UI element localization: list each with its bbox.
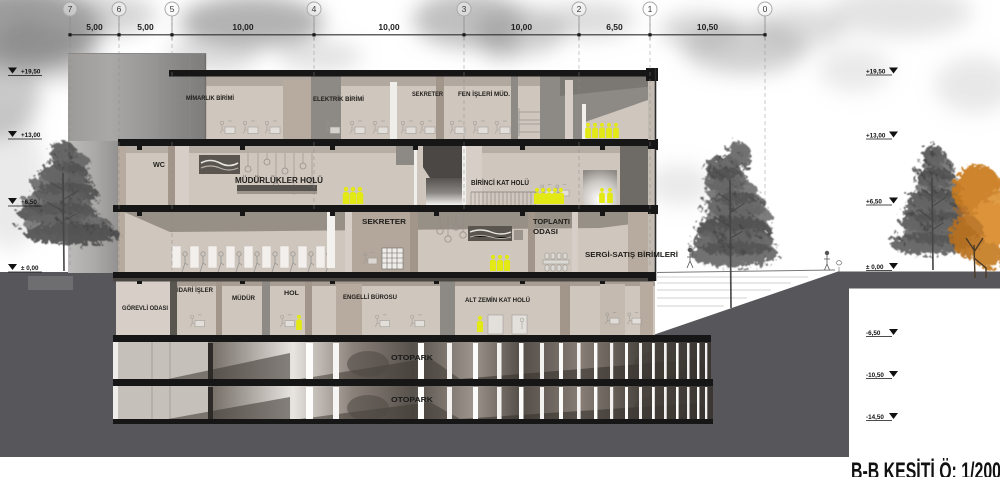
svg-text:GÖREVLİ ODASI: GÖREVLİ ODASI (122, 303, 168, 312)
svg-text:0: 0 (763, 4, 768, 14)
svg-text:5: 5 (170, 4, 175, 14)
svg-text:± 0,00: ± 0,00 (21, 265, 39, 272)
svg-text:10,00: 10,00 (378, 22, 400, 32)
svg-text:WC: WC (153, 160, 165, 169)
svg-text:SERGİ-SATIŞ BİRİMLERİ: SERGİ-SATIŞ BİRİMLERİ (585, 250, 678, 259)
svg-text:-6,50: -6,50 (866, 330, 881, 337)
svg-text:4: 4 (312, 4, 317, 14)
svg-text:+19,50: +19,50 (21, 69, 41, 76)
svg-text:B-B KESİTİ Ö: 1/200: B-B KESİTİ Ö: 1/200 (851, 458, 1000, 477)
svg-text:SEKRETER: SEKRETER (362, 217, 407, 226)
svg-text:6: 6 (117, 4, 122, 14)
svg-text:+13,00: +13,00 (21, 132, 41, 139)
svg-text:İDARİ İŞLER: İDARİ İŞLER (177, 286, 213, 294)
svg-text:+6,50: +6,50 (866, 199, 882, 206)
svg-text:-14,50: -14,50 (866, 414, 884, 421)
svg-text:2: 2 (577, 4, 582, 14)
svg-text:5,00: 5,00 (137, 22, 154, 32)
svg-text:ALT ZEMİN KAT HOLÜ: ALT ZEMİN KAT HOLÜ (465, 295, 530, 304)
svg-text:+19,50: +19,50 (866, 69, 886, 76)
svg-text:± 0,00: ± 0,00 (866, 264, 884, 271)
svg-text:HOL: HOL (284, 290, 299, 297)
svg-text:SEKRETER: SEKRETER (412, 91, 443, 98)
svg-text:5,00: 5,00 (86, 22, 103, 32)
svg-text:6,50: 6,50 (606, 22, 623, 32)
svg-text:10,00: 10,00 (232, 22, 254, 32)
svg-text:-10,50: -10,50 (866, 372, 884, 379)
svg-text:FEN İŞLERİ MÜD.: FEN İŞLERİ MÜD. (458, 89, 510, 98)
svg-text:10,00: 10,00 (511, 22, 533, 32)
svg-text:OTOPARK: OTOPARK (391, 353, 434, 362)
svg-text:+6,50: +6,50 (21, 199, 37, 206)
svg-text:TOPLANTI: TOPLANTI (533, 217, 570, 226)
svg-text:ENGELLİ BÜROSU: ENGELLİ BÜROSU (343, 292, 397, 301)
svg-text:MÜDÜRLÜKLER HOLÜ: MÜDÜRLÜKLER HOLÜ (235, 176, 323, 185)
svg-text:7: 7 (68, 4, 73, 14)
svg-text:OTOPARK: OTOPARK (391, 395, 434, 404)
svg-text:MÜDÜR: MÜDÜR (232, 293, 255, 302)
svg-text:+13,00: +13,00 (866, 133, 886, 140)
svg-text:MİMARLIK BİRİMİ: MİMARLIK BİRİMİ (186, 94, 234, 102)
svg-text:ODASI: ODASI (533, 227, 558, 236)
svg-text:BİRİNCİ KAT HOLÜ: BİRİNCİ KAT HOLÜ (471, 178, 529, 187)
svg-text:ELEKTRİK BİRİMİ: ELEKTRİK BİRİMİ (313, 95, 364, 103)
svg-text:10,50: 10,50 (697, 22, 719, 32)
svg-text:1: 1 (648, 4, 653, 14)
svg-text:3: 3 (462, 4, 467, 14)
